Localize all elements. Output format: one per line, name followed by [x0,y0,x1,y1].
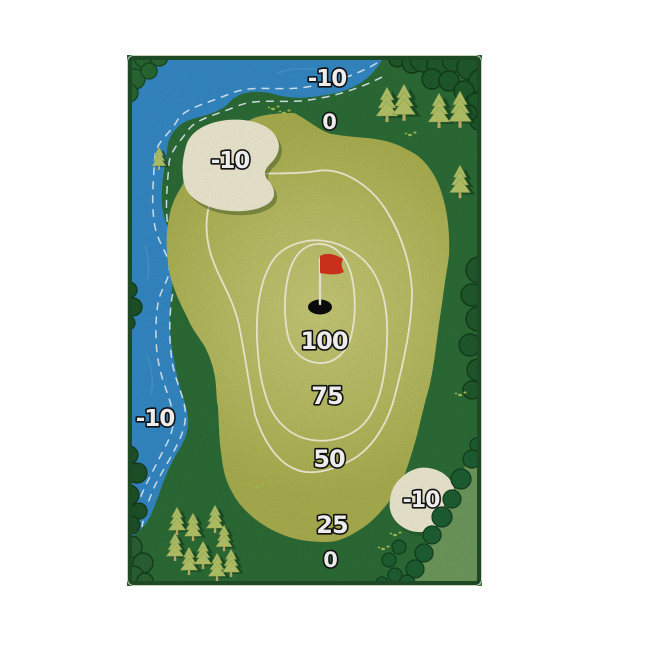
product-photo: -10 0 -10 -10 100 75 50 25 -10 0 [0,0,645,645]
golf-mat-graphic: -10 0 -10 -10 100 75 50 25 -10 0 [127,55,482,586]
golf-target-mat: -10 0 -10 -10 100 75 50 25 -10 0 [127,55,482,586]
texture-overlay [127,55,482,586]
